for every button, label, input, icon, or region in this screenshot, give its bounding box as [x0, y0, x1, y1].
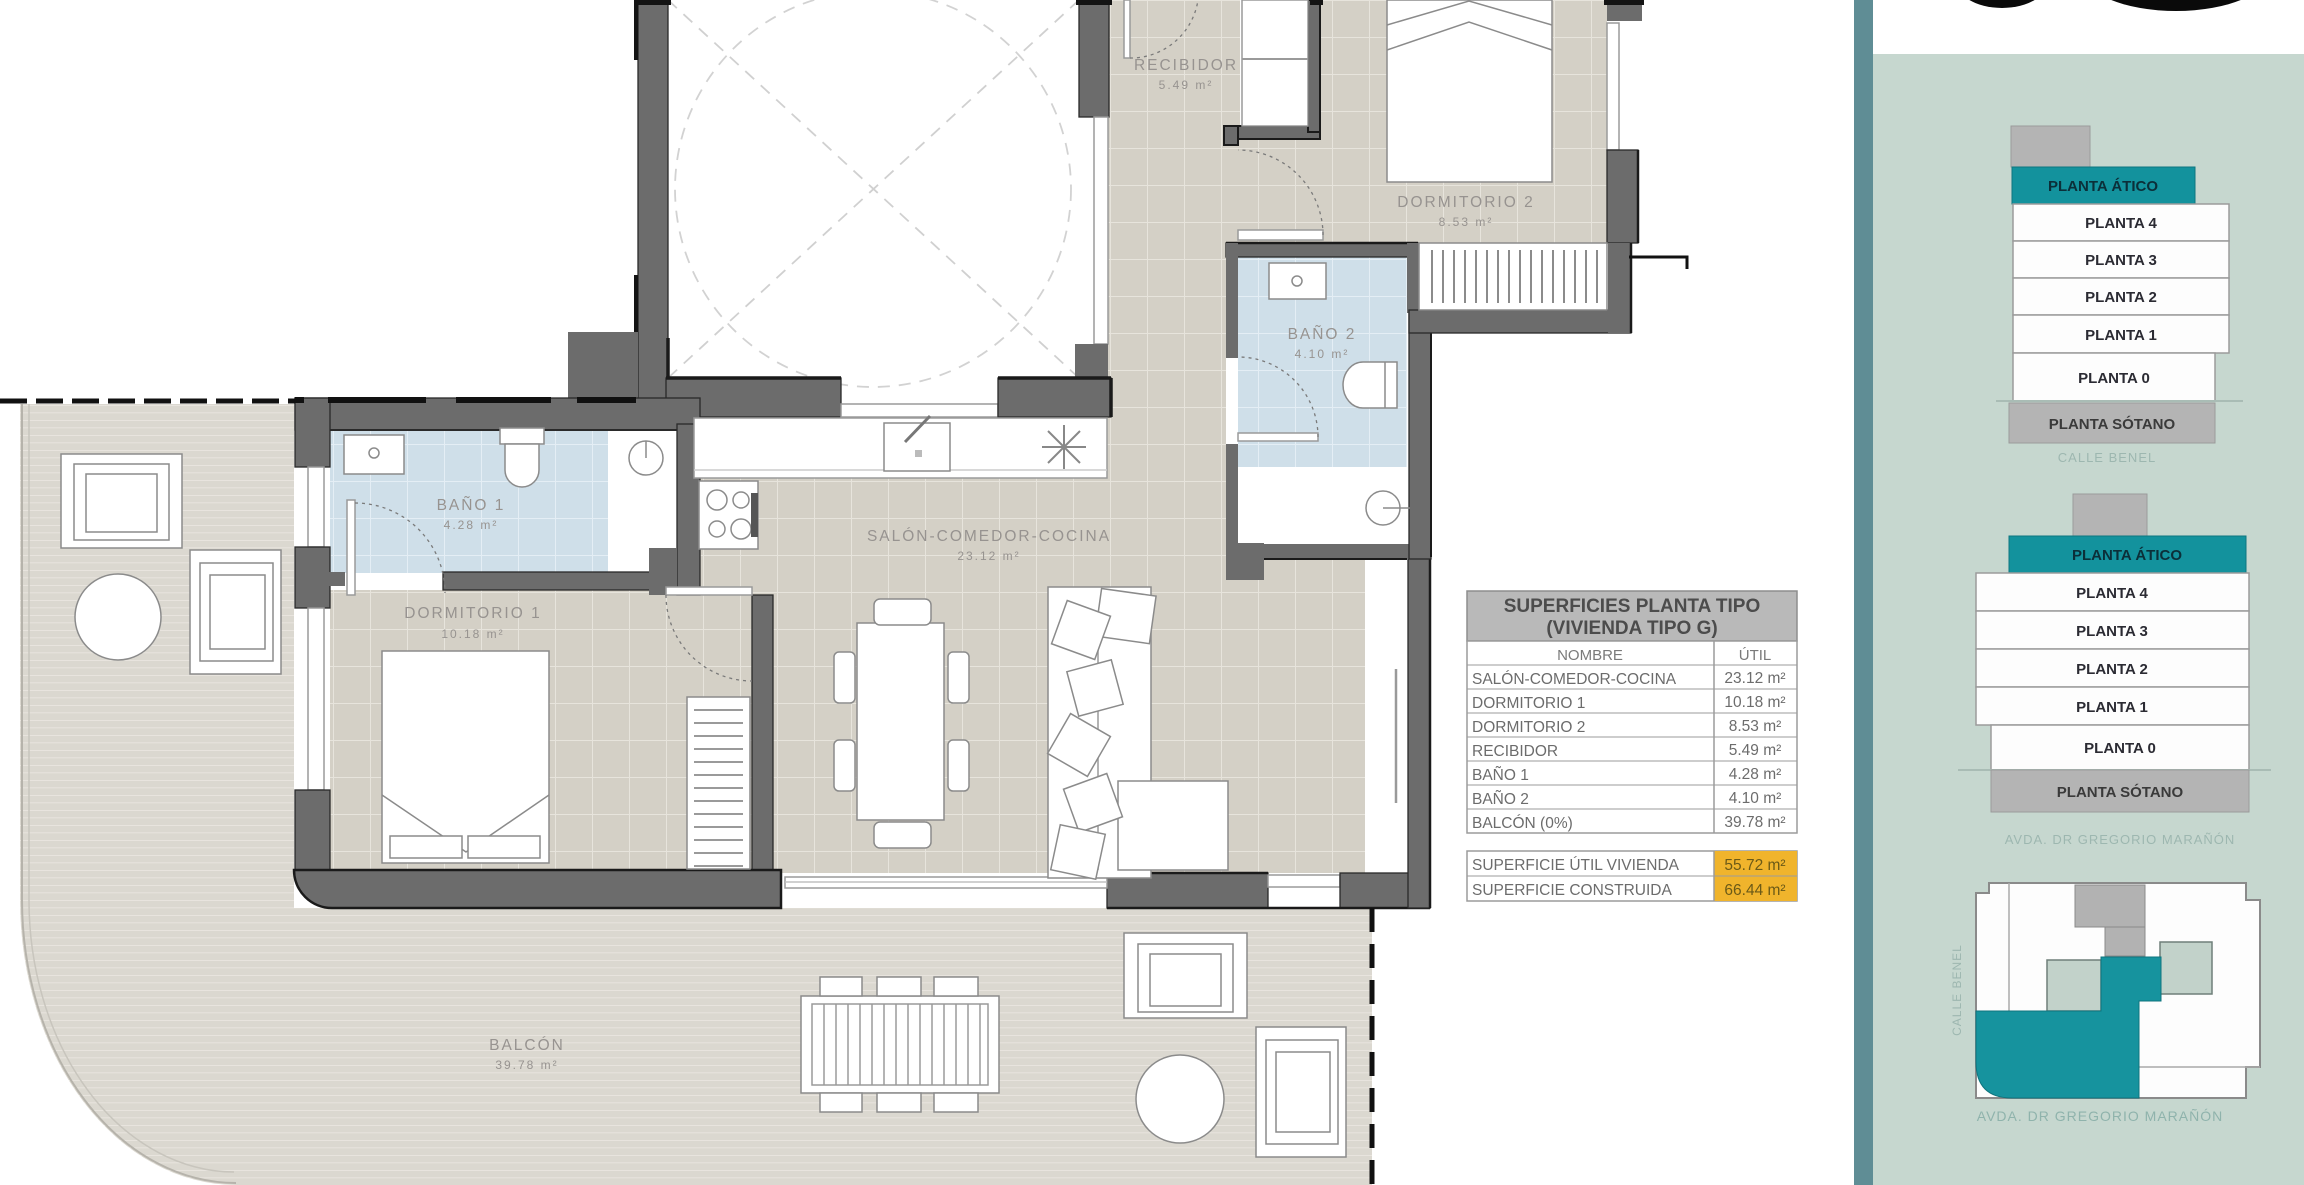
- svg-text:PLANTA 1: PLANTA 1: [2085, 327, 2157, 344]
- svg-text:PLANTA 1: PLANTA 1: [2076, 699, 2148, 716]
- svg-text:PLANTA 0: PLANTA 0: [2078, 370, 2150, 387]
- svg-text:4.10 m²: 4.10 m²: [1295, 347, 1350, 361]
- svg-text:BAÑO 2: BAÑO 2: [1288, 326, 1357, 343]
- svg-text:BAÑO 1: BAÑO 1: [1472, 767, 1529, 784]
- svg-text:39.78 m²: 39.78 m²: [1724, 814, 1785, 831]
- svg-text:CALLE BENEL: CALLE BENEL: [1950, 944, 1964, 1036]
- svg-text:5.49 m²: 5.49 m²: [1159, 78, 1214, 92]
- svg-text:SUPERFICIES PLANTA TIPO: SUPERFICIES PLANTA TIPO: [1504, 596, 1761, 617]
- svg-text:PLANTA 3: PLANTA 3: [2085, 252, 2157, 269]
- svg-text:23.12 m²: 23.12 m²: [957, 549, 1020, 563]
- svg-text:CALLE BENEL: CALLE BENEL: [2058, 450, 2156, 465]
- svg-text:DORMITORIO 1: DORMITORIO 1: [404, 605, 541, 622]
- svg-text:10.18 m²: 10.18 m²: [441, 627, 504, 641]
- svg-text:PLANTA 0: PLANTA 0: [2084, 740, 2156, 757]
- svg-text:5.49 m²: 5.49 m²: [1729, 742, 1782, 759]
- svg-text:PLANTA SÓTANO: PLANTA SÓTANO: [2057, 783, 2184, 801]
- svg-text:PLANTA 2: PLANTA 2: [2085, 289, 2157, 306]
- svg-text:4.28 m²: 4.28 m²: [1729, 766, 1782, 783]
- svg-text:8.53 m²: 8.53 m²: [1729, 718, 1782, 735]
- svg-text:8.53 m²: 8.53 m²: [1439, 215, 1494, 229]
- svg-text:66.44 m²: 66.44 m²: [1724, 882, 1785, 899]
- svg-text:RECIBIDOR: RECIBIDOR: [1134, 57, 1238, 74]
- svg-text:39.78 m²: 39.78 m²: [495, 1058, 558, 1072]
- svg-text:PLANTA 3: PLANTA 3: [2076, 623, 2148, 640]
- svg-text:AVDA. DR GREGORIO MARAÑÓN: AVDA. DR GREGORIO MARAÑÓN: [1977, 1108, 2223, 1124]
- svg-text:10.18 m²: 10.18 m²: [1724, 694, 1785, 711]
- svg-text:55.72 m²: 55.72 m²: [1724, 857, 1785, 874]
- svg-text:PLANTA 2: PLANTA 2: [2076, 661, 2148, 678]
- svg-text:DORMITORIO 2: DORMITORIO 2: [1397, 194, 1534, 211]
- svg-text:SALÓN-COMEDOR-COCINA: SALÓN-COMEDOR-COCINA: [867, 528, 1111, 545]
- svg-text:PLANTA 4: PLANTA 4: [2076, 585, 2148, 602]
- svg-text:BALCÓN: BALCÓN: [489, 1037, 565, 1054]
- svg-text:ÚTIL: ÚTIL: [1739, 647, 1772, 664]
- svg-text:RECIBIDOR: RECIBIDOR: [1472, 743, 1558, 760]
- svg-text:SUPERFICIE ÚTIL VIVIENDA: SUPERFICIE ÚTIL VIVIENDA: [1472, 857, 1680, 874]
- svg-text:PLANTA ÁTICO: PLANTA ÁTICO: [2072, 547, 2182, 564]
- svg-text:SALÓN-COMEDOR-COCINA: SALÓN-COMEDOR-COCINA: [1472, 671, 1677, 688]
- svg-text:PLANTA SÓTANO: PLANTA SÓTANO: [2049, 415, 2176, 433]
- svg-text:(VIVIENDA TIPO G): (VIVIENDA TIPO G): [1546, 618, 1717, 639]
- svg-text:4.10 m²: 4.10 m²: [1729, 790, 1782, 807]
- svg-text:PLANTA ÁTICO: PLANTA ÁTICO: [2048, 178, 2158, 195]
- svg-text:DORMITORIO 1: DORMITORIO 1: [1472, 695, 1585, 712]
- svg-text:PLANTA 4: PLANTA 4: [2085, 215, 2157, 232]
- svg-text:AVDA. DR GREGORIO MARAÑÓN: AVDA. DR GREGORIO MARAÑÓN: [2005, 832, 2236, 847]
- svg-text:BAÑO 2: BAÑO 2: [1472, 791, 1529, 808]
- svg-text:DORMITORIO 2: DORMITORIO 2: [1472, 719, 1585, 736]
- svg-text:NOMBRE: NOMBRE: [1557, 647, 1623, 664]
- svg-text:23.12 m²: 23.12 m²: [1724, 670, 1785, 687]
- svg-text:4.28 m²: 4.28 m²: [444, 518, 499, 532]
- svg-text:SUPERFICIE CONSTRUIDA: SUPERFICIE CONSTRUIDA: [1472, 882, 1672, 899]
- svg-text:BAÑO 1: BAÑO 1: [437, 497, 506, 514]
- svg-text:BALCÓN (0%): BALCÓN (0%): [1472, 815, 1573, 832]
